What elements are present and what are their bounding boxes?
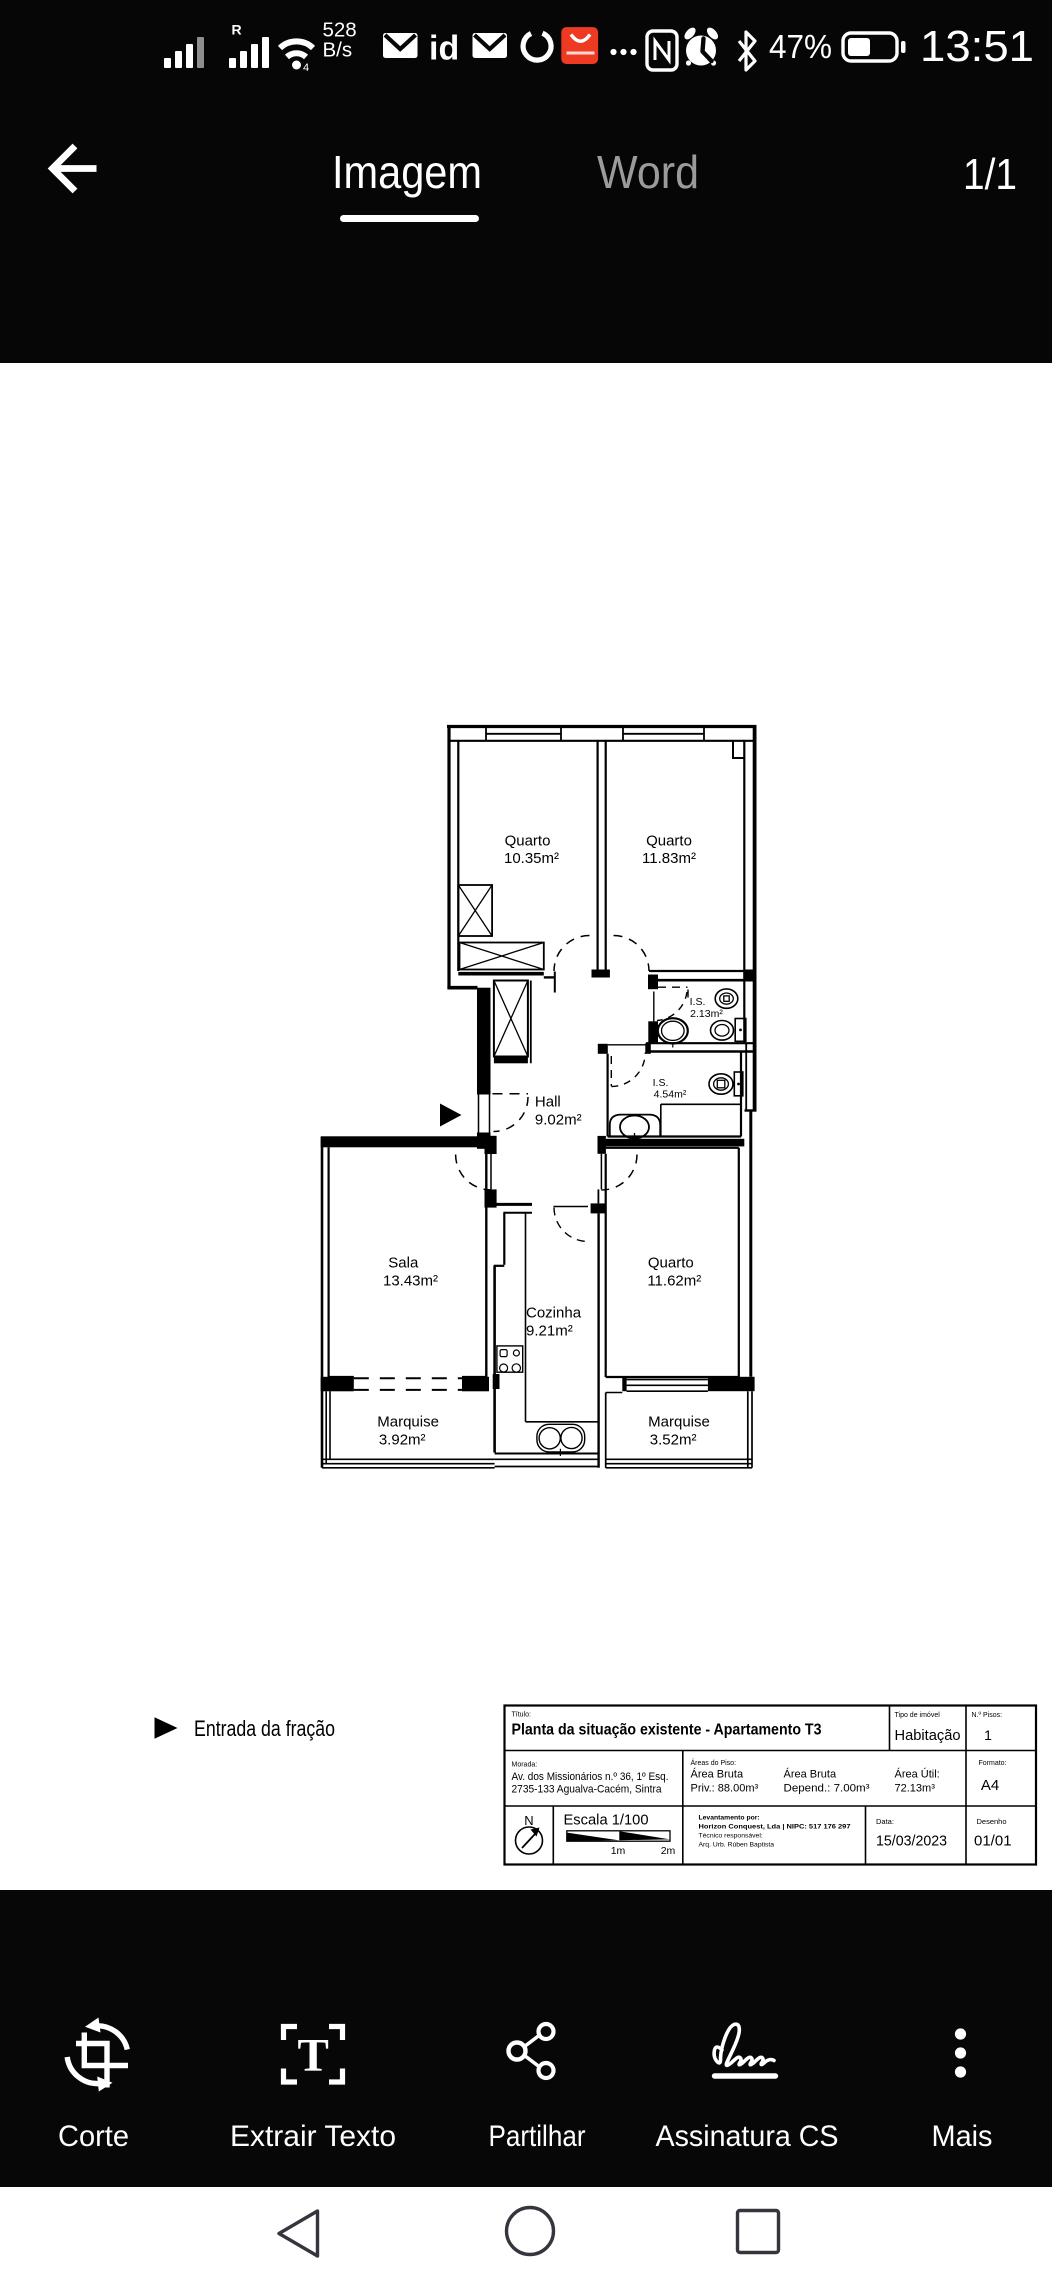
svg-text:4: 4 xyxy=(303,62,309,74)
svg-text:13:51: 13:51 xyxy=(920,22,1034,71)
svg-text:11.62m²: 11.62m² xyxy=(647,1273,701,1290)
svg-text:Habitação: Habitação xyxy=(895,1727,961,1744)
svg-text:Área Bruta: Área Bruta xyxy=(784,1768,837,1781)
svg-text:Partilhar: Partilhar xyxy=(489,2120,586,2153)
svg-text:Título:: Título: xyxy=(512,1712,532,1719)
svg-text:Data:: Data: xyxy=(876,1817,894,1826)
svg-text:N.º Pisos:: N.º Pisos: xyxy=(972,1712,1003,1719)
svg-text:2.13m²: 2.13m² xyxy=(690,1008,723,1020)
svg-text:Área Útil:: Área Útil: xyxy=(895,1768,940,1781)
svg-text:Depend.: 7.00m³: Depend.: 7.00m³ xyxy=(784,1783,870,1795)
svg-text:3.92m²: 3.92m² xyxy=(379,1432,426,1449)
svg-text:4.54m²: 4.54m² xyxy=(654,1089,687,1101)
svg-text:Técnico responsável:: Técnico responsável: xyxy=(699,1833,763,1840)
svg-text:2m: 2m xyxy=(661,1845,676,1857)
svg-text:Extrair Texto: Extrair Texto xyxy=(230,2120,396,2153)
svg-text:Quarto: Quarto xyxy=(505,833,551,850)
svg-text:72.13m³: 72.13m³ xyxy=(895,1783,936,1795)
svg-text:Sala: Sala xyxy=(388,1255,419,1272)
svg-text:Av. dos Missionários n.º 36, 1: Av. dos Missionários n.º 36, 1º Esq. xyxy=(512,1771,669,1783)
svg-text:15/03/2023: 15/03/2023 xyxy=(876,1833,947,1850)
svg-text:11.83m²: 11.83m² xyxy=(642,850,696,867)
svg-text:13.43m²: 13.43m² xyxy=(383,1273,438,1290)
svg-text:9.21m²: 9.21m² xyxy=(526,1323,573,1340)
svg-text:Cozinha: Cozinha xyxy=(526,1305,582,1322)
svg-text:T: T xyxy=(298,2030,329,2082)
svg-text:Planta da situação existente -: Planta da situação existente - Apartamen… xyxy=(512,1722,822,1739)
svg-text:Word: Word xyxy=(597,146,699,198)
svg-text:Quarto: Quarto xyxy=(646,833,692,850)
svg-text:1m: 1m xyxy=(611,1845,626,1857)
svg-text:Arq. Urb. Rúben Baptista: Arq. Urb. Rúben Baptista xyxy=(699,1842,775,1849)
svg-text:B/s: B/s xyxy=(323,39,353,62)
svg-text:id: id xyxy=(429,30,459,68)
svg-text:Mais: Mais xyxy=(932,2120,993,2153)
svg-text:Imagem: Imagem xyxy=(332,146,482,198)
svg-text:Entrada da fração: Entrada da fração xyxy=(194,1716,335,1741)
svg-text:N: N xyxy=(524,1813,533,1828)
svg-text:Tipo de imóvel: Tipo de imóvel xyxy=(895,1712,941,1719)
svg-text:Corte: Corte xyxy=(58,2120,129,2153)
svg-text:Escala 1/100: Escala 1/100 xyxy=(564,1812,649,1829)
svg-text:2735-133 Agualva-Cacém, Sintra: 2735-133 Agualva-Cacém, Sintra xyxy=(512,1784,663,1796)
svg-text:Áreas do Piso:: Áreas do Piso: xyxy=(691,1758,737,1767)
svg-text:1/1: 1/1 xyxy=(963,150,1017,199)
svg-text:Morada:: Morada: xyxy=(512,1762,538,1769)
svg-text:Horizon Conquest, Lda | NIPC:: Horizon Conquest, Lda | NIPC: 517 176 29… xyxy=(699,1824,851,1831)
svg-text:Marquise: Marquise xyxy=(377,1414,439,1431)
svg-text:1: 1 xyxy=(984,1727,992,1743)
svg-text:Levantamento por:: Levantamento por: xyxy=(699,1815,760,1822)
svg-text:10.35m²: 10.35m² xyxy=(504,850,559,867)
svg-text:Marquise: Marquise xyxy=(648,1414,710,1431)
svg-text:Formato:: Formato: xyxy=(979,1760,1007,1767)
svg-text:R: R xyxy=(232,22,242,38)
svg-text:47%: 47% xyxy=(769,28,832,65)
svg-text:A4: A4 xyxy=(981,1777,999,1794)
svg-text:Desenho: Desenho xyxy=(977,1817,1007,1826)
svg-text:Quarto: Quarto xyxy=(648,1255,694,1272)
svg-text:Assinatura CS: Assinatura CS xyxy=(656,2120,839,2153)
svg-text:I.S.: I.S. xyxy=(690,996,706,1008)
svg-text:01/01: 01/01 xyxy=(974,1833,1012,1850)
svg-text:3.52m²: 3.52m² xyxy=(650,1432,697,1449)
svg-text:9.02m²: 9.02m² xyxy=(535,1112,582,1129)
svg-text:Área Bruta: Área Bruta xyxy=(691,1768,744,1781)
svg-text:I.S.: I.S. xyxy=(653,1077,669,1089)
svg-text:Priv.: 88.00m³: Priv.: 88.00m³ xyxy=(691,1783,759,1795)
svg-text:Hall: Hall xyxy=(535,1093,561,1110)
